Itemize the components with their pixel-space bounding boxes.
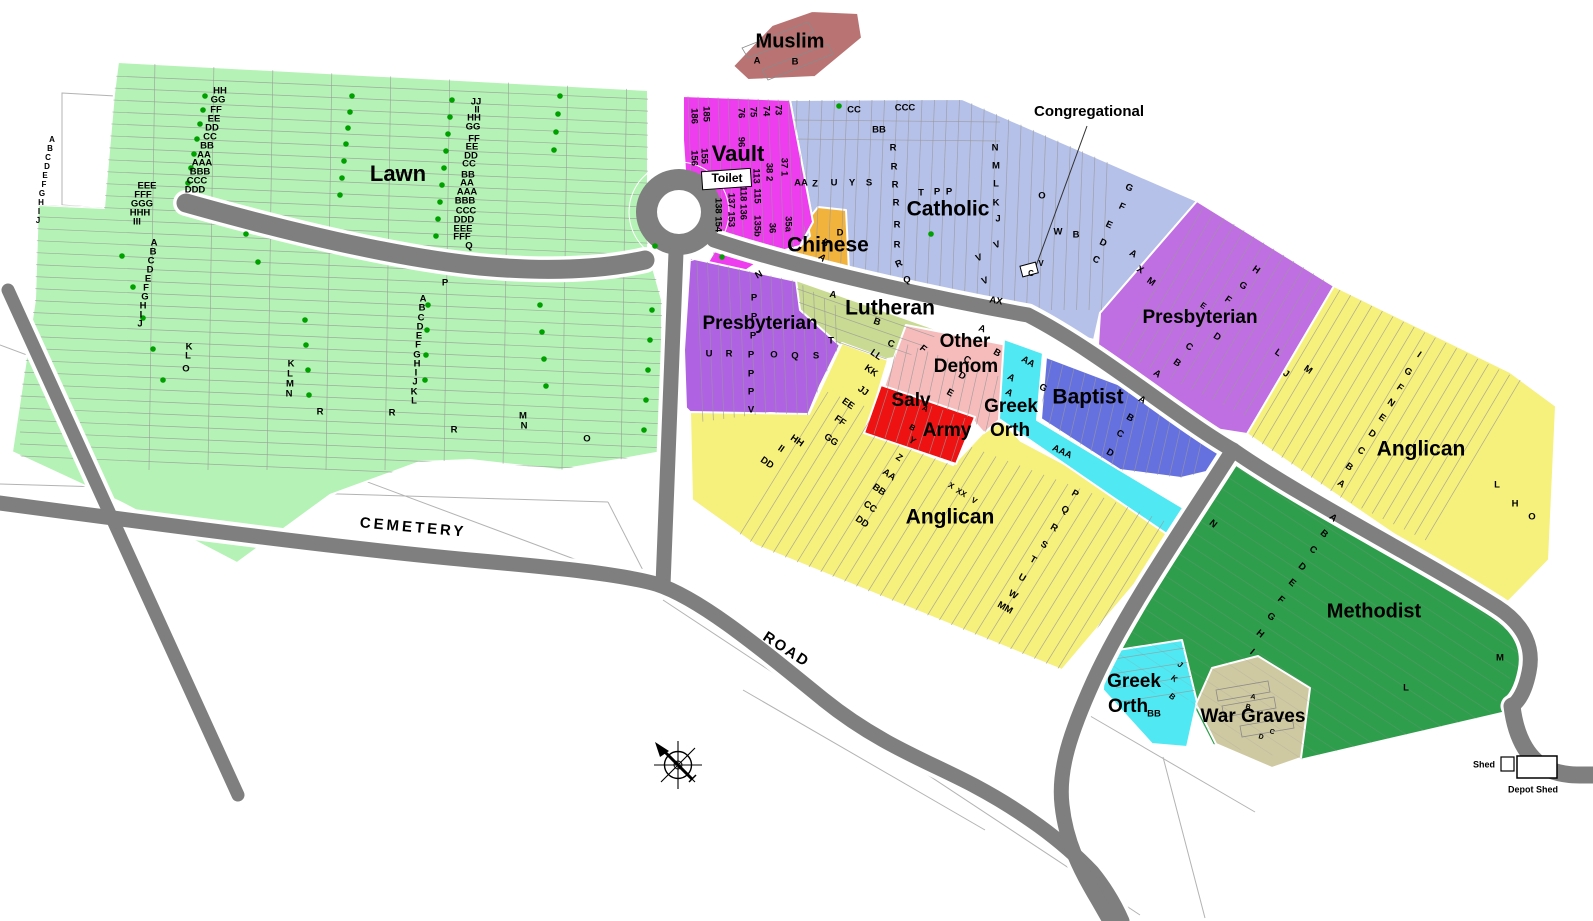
plot-label: P [748, 350, 755, 361]
plot-label: 186 [688, 108, 699, 124]
plot-label: GG [466, 122, 481, 133]
plot-label: R [451, 425, 458, 436]
plot-label: E [42, 171, 48, 180]
plot-label: Y [849, 178, 856, 189]
plot-label: L [1403, 683, 1409, 694]
plot-label: 37 1 [778, 158, 789, 177]
section-title: Depot Shed [1508, 784, 1558, 794]
plot-label: CC [847, 105, 861, 116]
plot-label: Q [791, 351, 798, 362]
section-title: Catholic [907, 198, 990, 221]
plot-label: 185 [700, 106, 711, 123]
plot-label: L [411, 396, 417, 407]
section-title: Denom [934, 356, 998, 377]
plot-label: D [44, 162, 50, 171]
plot-label: R [892, 180, 899, 191]
plot-label: V [748, 405, 755, 416]
section-title: Salv [891, 390, 931, 411]
plot-label: U [706, 349, 713, 360]
plot-label: S [866, 178, 872, 189]
section-title: Orth [990, 420, 1030, 441]
plot-label: 115 [751, 188, 762, 204]
plot-label: W [1054, 227, 1063, 238]
plot-label: C [45, 153, 51, 162]
plot-label: P [442, 278, 449, 289]
plot-label: O [1038, 191, 1045, 202]
plot-label: N [286, 389, 293, 400]
plot-label: 118 136 [737, 186, 748, 220]
plot-label: N [521, 421, 528, 432]
plot-label: L [1494, 480, 1500, 491]
plot-label: 138 154 [712, 198, 723, 233]
plot-label: B [1073, 230, 1080, 241]
plot-label: F [42, 180, 47, 189]
plot-label: Q [903, 275, 910, 286]
plot-label: AA [794, 178, 808, 189]
section-title: Congregational [1034, 103, 1144, 120]
section-title: Greek [984, 396, 1038, 417]
plot-label: P [751, 293, 758, 304]
plot-label: C [1028, 269, 1034, 278]
plot-label: G [39, 189, 45, 198]
plot-label: H [38, 198, 44, 207]
section-title: Baptist [1052, 386, 1123, 409]
plot-label: B [792, 57, 799, 68]
plot-label: R [891, 162, 898, 173]
plot-label: R [894, 220, 901, 231]
plot-label: 73 [772, 105, 783, 116]
plot-label: 76 [735, 108, 746, 119]
section-title: Greek [1107, 671, 1161, 692]
shed-building [1501, 757, 1514, 771]
plot-label: B [47, 144, 53, 153]
section-title: Anglican [906, 506, 995, 529]
plot-label: J [36, 216, 40, 225]
section-title: Army [923, 420, 972, 441]
plot-label: 36 [766, 223, 777, 234]
plot-label: L [993, 179, 999, 190]
plot-label: L [185, 351, 191, 362]
plot-label: 38 2 [763, 163, 774, 182]
plot-label: V [1038, 259, 1044, 268]
plot-label: O [1528, 512, 1535, 523]
plot-label: CCC [895, 103, 916, 114]
plot-label: 135b [751, 215, 762, 237]
plot-label: J [137, 319, 142, 330]
section-title: Methodist [1327, 600, 1422, 622]
plot-label: M [1496, 653, 1504, 664]
section-title: Lutheran [845, 297, 935, 320]
section-title: Muslim [756, 30, 825, 52]
plot-label: S [813, 351, 819, 362]
plot-label: U [831, 178, 838, 189]
plot-label: P [946, 187, 953, 198]
plot-label: I [38, 207, 40, 216]
plot-label: R [894, 240, 901, 251]
plot-label: P [748, 387, 755, 398]
section-title: Vault [712, 141, 765, 166]
plot-label: A [49, 135, 55, 144]
plot-label: 156 [688, 150, 699, 166]
section-title: Shed [1473, 759, 1495, 769]
section-title: Chinese [787, 234, 869, 257]
plot-label: P [934, 187, 941, 198]
cemetery-map: ABCDEFGHIJABCDEFGHIJKLOKLMNABCDEFGHIJKLM… [0, 0, 1593, 921]
section-title: Toilet [711, 171, 742, 185]
plot-label: R [893, 198, 900, 209]
plot-label: Q [465, 241, 472, 252]
plot-label: 137 153 [725, 193, 736, 227]
plot-label: H [1512, 499, 1519, 510]
plot-label: R [890, 143, 897, 154]
plot-label: R [389, 408, 396, 419]
section-title: Other [940, 331, 991, 352]
plot-label: M [992, 161, 1000, 172]
plot-label: 35a [782, 216, 793, 233]
plot-label: O [583, 434, 590, 445]
section-title: War Graves [1201, 706, 1306, 727]
plot-label: 75 [747, 107, 758, 118]
plot-label: III [133, 217, 141, 228]
section-title: Presbyterian [1142, 307, 1257, 328]
plot-label: DDD [185, 185, 206, 196]
plot-label: 74 [760, 106, 771, 117]
plot-label: R [726, 349, 733, 360]
depot-shed-building [1517, 756, 1557, 778]
plot-label: CC [462, 159, 476, 170]
section-title: Lawn [370, 161, 426, 186]
plot-label: O [182, 364, 189, 375]
section-title: Orth [1108, 696, 1148, 717]
compass-icon [654, 741, 702, 789]
cemetery-map-page: ABCDEFGHIJABCDEFGHIJKLOKLMNABCDEFGHIJKLM… [0, 0, 1593, 921]
plot-label: T [828, 336, 834, 347]
plot-label: A [754, 56, 761, 67]
plot-label: N [992, 143, 999, 154]
plot-label: J [995, 214, 1000, 225]
section-title: Presbyterian [702, 313, 817, 334]
plot-label: BB [1147, 709, 1161, 720]
plot-label: K [993, 198, 1000, 209]
plot-label: 113 [750, 168, 761, 183]
plot-label: R [317, 407, 324, 418]
plot-label: P [748, 369, 755, 380]
plot-label: BB [872, 125, 886, 136]
plot-label: O [770, 350, 777, 361]
plot-label: Z [812, 179, 818, 190]
section-title: Anglican [1377, 438, 1466, 461]
